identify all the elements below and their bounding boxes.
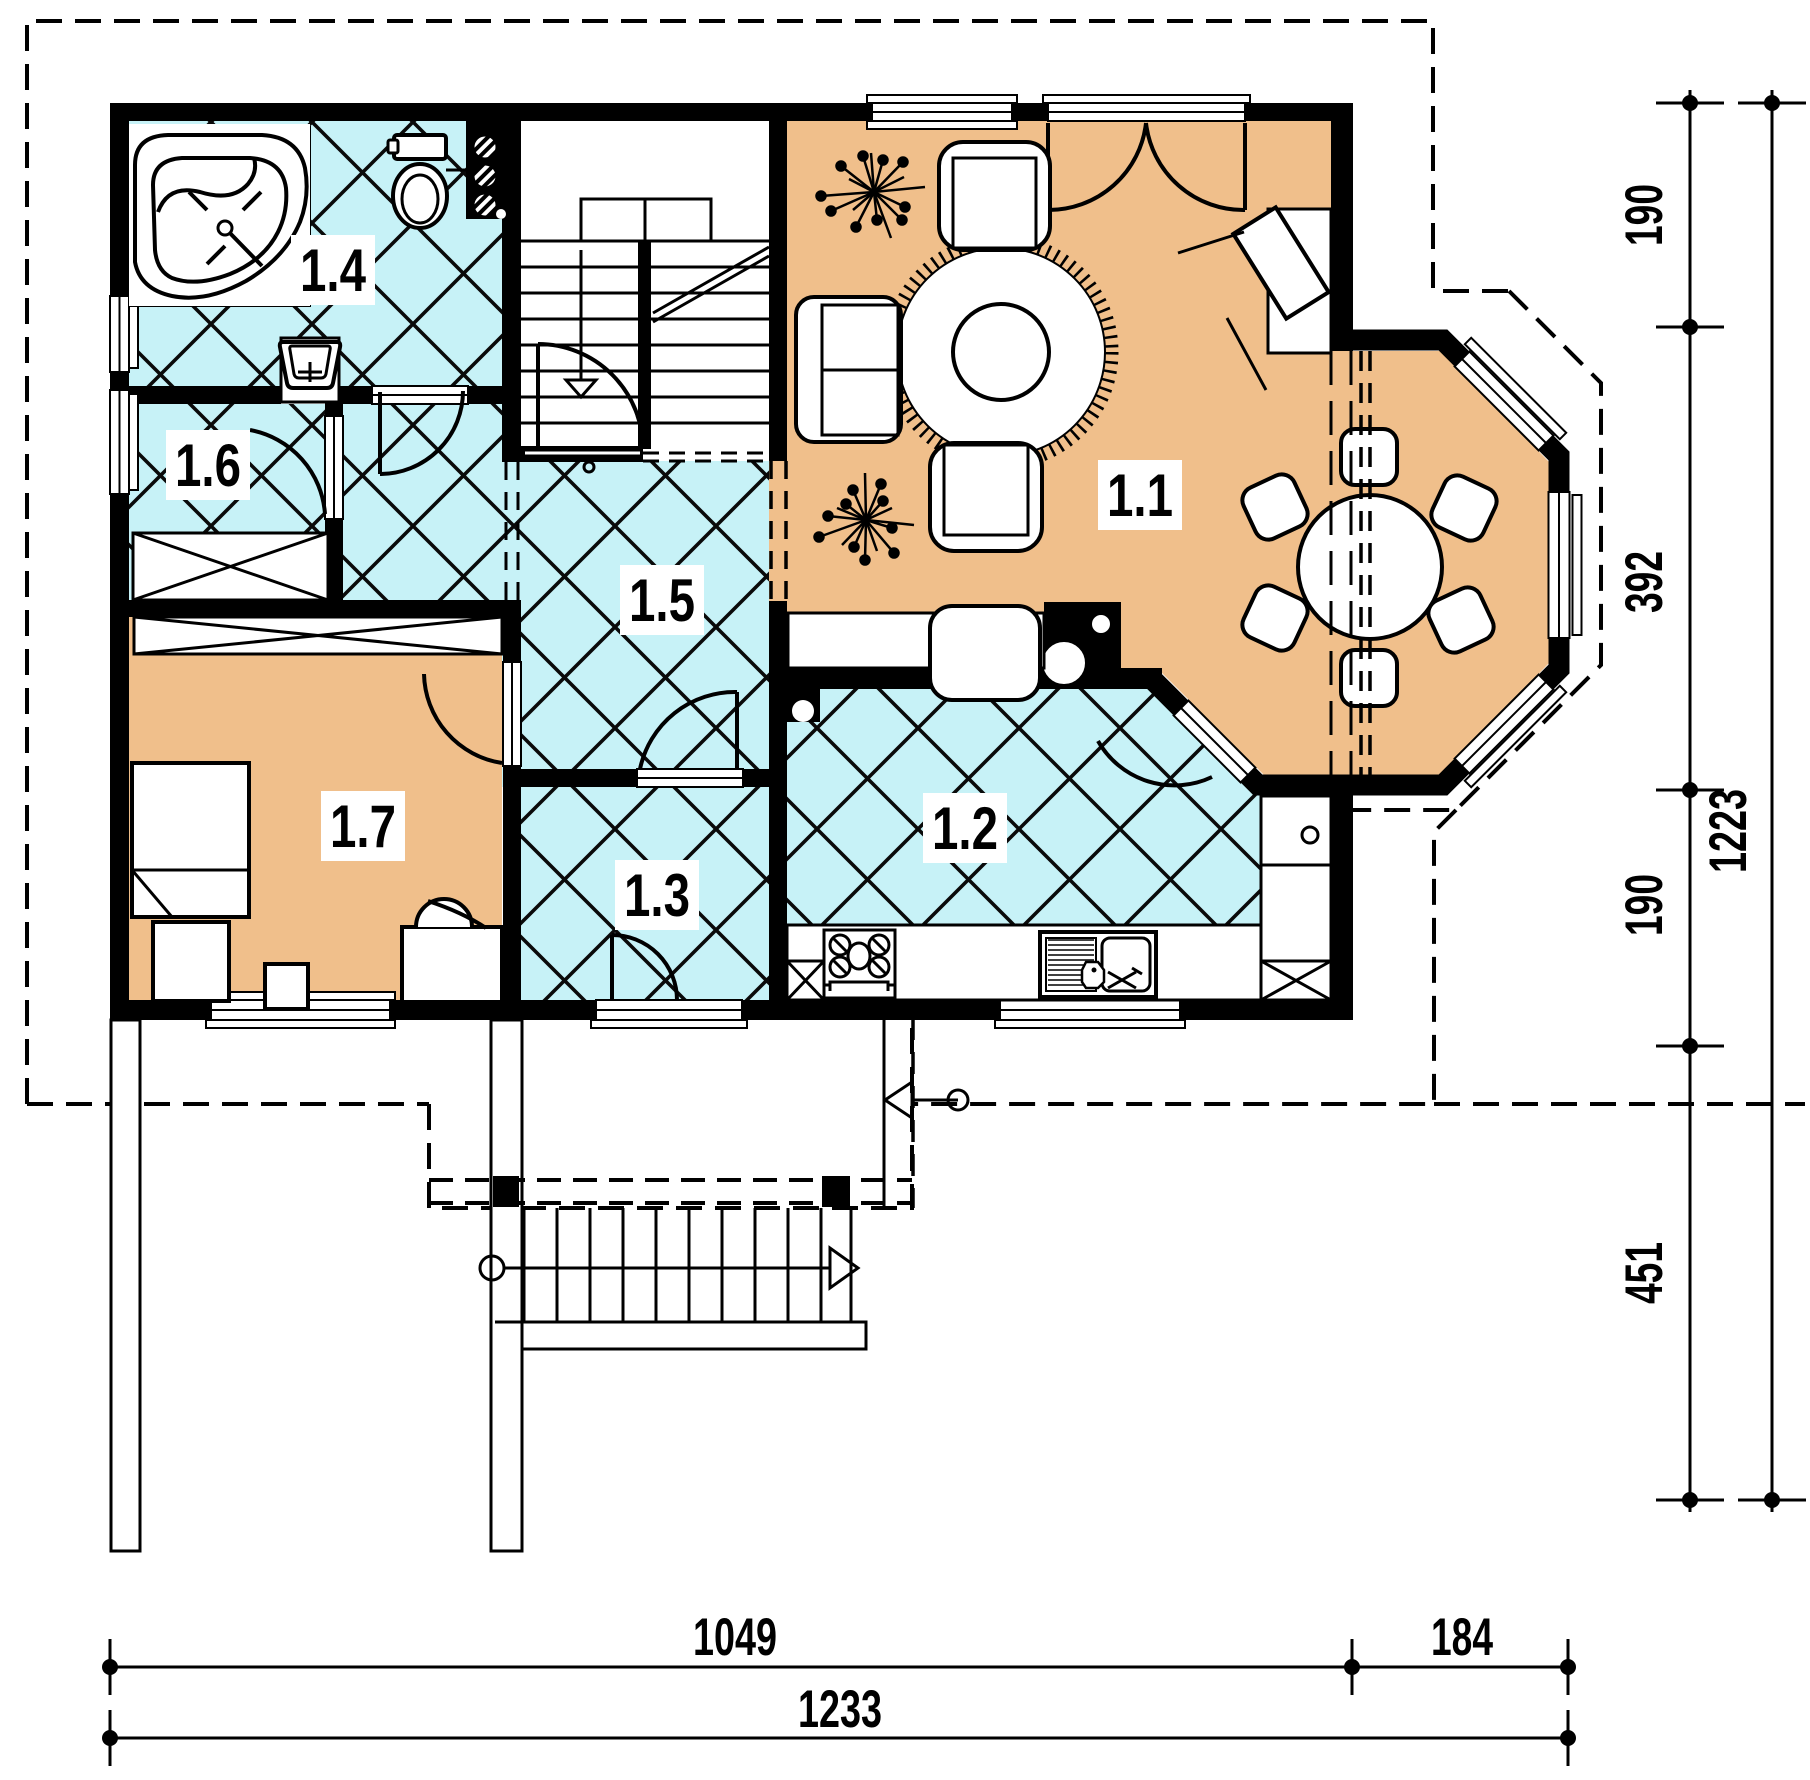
svg-text:1.4: 1.4 — [300, 237, 366, 304]
svg-text:1.6: 1.6 — [175, 432, 241, 499]
svg-text:190: 190 — [1615, 184, 1674, 246]
svg-text:190: 190 — [1615, 874, 1674, 936]
svg-text:451: 451 — [1615, 1242, 1674, 1304]
svg-text:1.2: 1.2 — [932, 795, 998, 862]
svg-text:1049: 1049 — [693, 1608, 777, 1667]
svg-text:1223: 1223 — [1699, 789, 1758, 873]
svg-text:1.7: 1.7 — [330, 793, 396, 860]
svg-text:1.5: 1.5 — [629, 567, 695, 634]
svg-text:184: 184 — [1431, 1608, 1493, 1667]
svg-text:1.3: 1.3 — [624, 862, 690, 929]
svg-text:1233: 1233 — [798, 1680, 882, 1739]
svg-text:392: 392 — [1615, 551, 1674, 613]
svg-text:1.1: 1.1 — [1107, 462, 1173, 529]
